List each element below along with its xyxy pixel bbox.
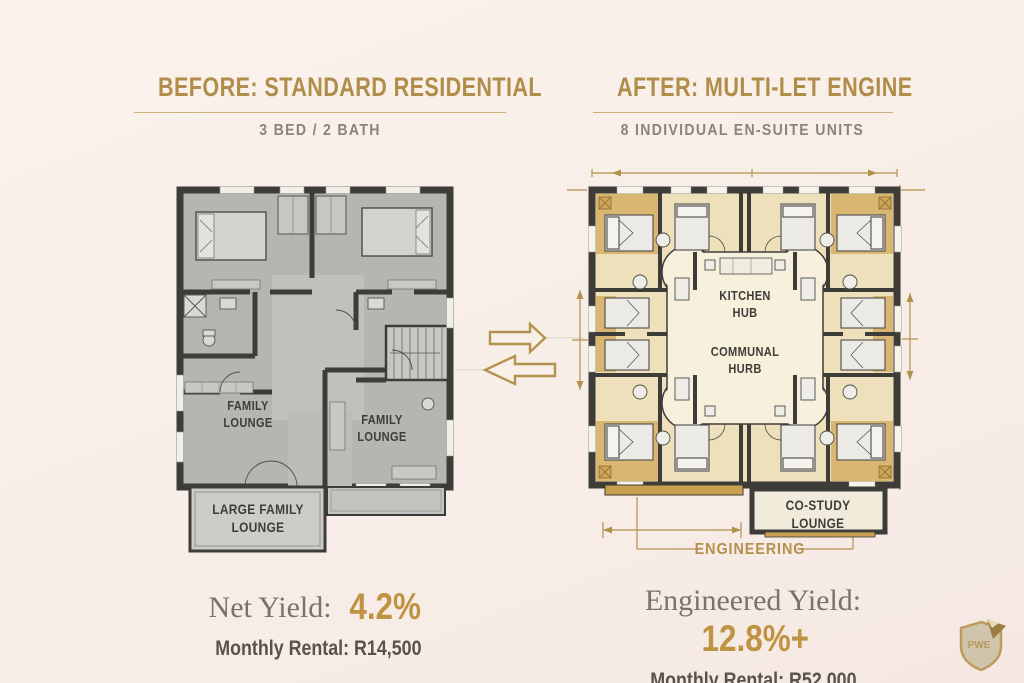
before-floorplan (160, 180, 480, 555)
after-rental: Monthly Rental: R52.000 (578, 669, 928, 683)
before-header: BEFORE: STANDARD RESIDENTIAL 3 BED / 2 B… (110, 72, 530, 140)
after-yield: Engineered Yield: 12.8%+ (578, 584, 928, 660)
stairs-icon (386, 326, 448, 380)
infographic-canvas: BEFORE: STANDARD RESIDENTIAL 3 BED / 2 B… (0, 0, 1024, 683)
room-label-large-family-lounge: LARGE FAMILY LOUNGE (208, 500, 308, 536)
after-yield-value: 12.8%+ (701, 618, 809, 660)
engineering-annotation: ENGINEERING (695, 541, 806, 559)
brand-shield-logo: PWE (952, 615, 1012, 675)
arrow-right-icon (490, 324, 545, 352)
after-stats: Engineered Yield: 12.8%+ Monthly Rental:… (578, 584, 928, 683)
after-title: AFTER: MULTI-LET ENGINE (580, 72, 905, 103)
room-label-communal-hurb: COMMUNAL HURB (709, 344, 780, 378)
before-yield-label: Net Yield: (209, 591, 332, 624)
before-title-underline (134, 112, 506, 113)
communal-hub-room (662, 236, 828, 440)
arrow-left-icon (485, 356, 555, 384)
room-label-co-study-lounge: CO-STUDY LOUNGE (782, 496, 853, 532)
before-yield-value: 4.2% (349, 586, 421, 628)
before-title: BEFORE: STANDARD RESIDENTIAL (110, 72, 530, 103)
room-label-family-lounge-left: FAMILY LOUNGE (218, 398, 278, 432)
before-subtitle: 3 BED / 2 BATH (110, 122, 530, 140)
after-yield-label: Engineered Yield: (645, 584, 861, 617)
after-title-underline (593, 112, 893, 113)
before-stats: Net Yield: 4.2% Monthly Rental: R14,500 (148, 586, 488, 661)
room-label-family-lounge-right: FAMILY LOUNGE (352, 412, 412, 446)
bed-icon (362, 208, 432, 256)
after-header: AFTER: MULTI-LET ENGINE 8 INDIVIDUAL EN-… (580, 72, 905, 140)
logo-monogram: PWE (968, 640, 991, 651)
room-label-kitchen-hub: KITCHEN HUB (717, 288, 773, 322)
before-rental: Monthly Rental: R14,500 (148, 637, 488, 661)
bed-icon (196, 212, 266, 260)
after-subtitle: 8 INDIVIDUAL EN-SUITE UNITS (580, 122, 905, 140)
before-yield: Net Yield: 4.2% (148, 586, 488, 628)
